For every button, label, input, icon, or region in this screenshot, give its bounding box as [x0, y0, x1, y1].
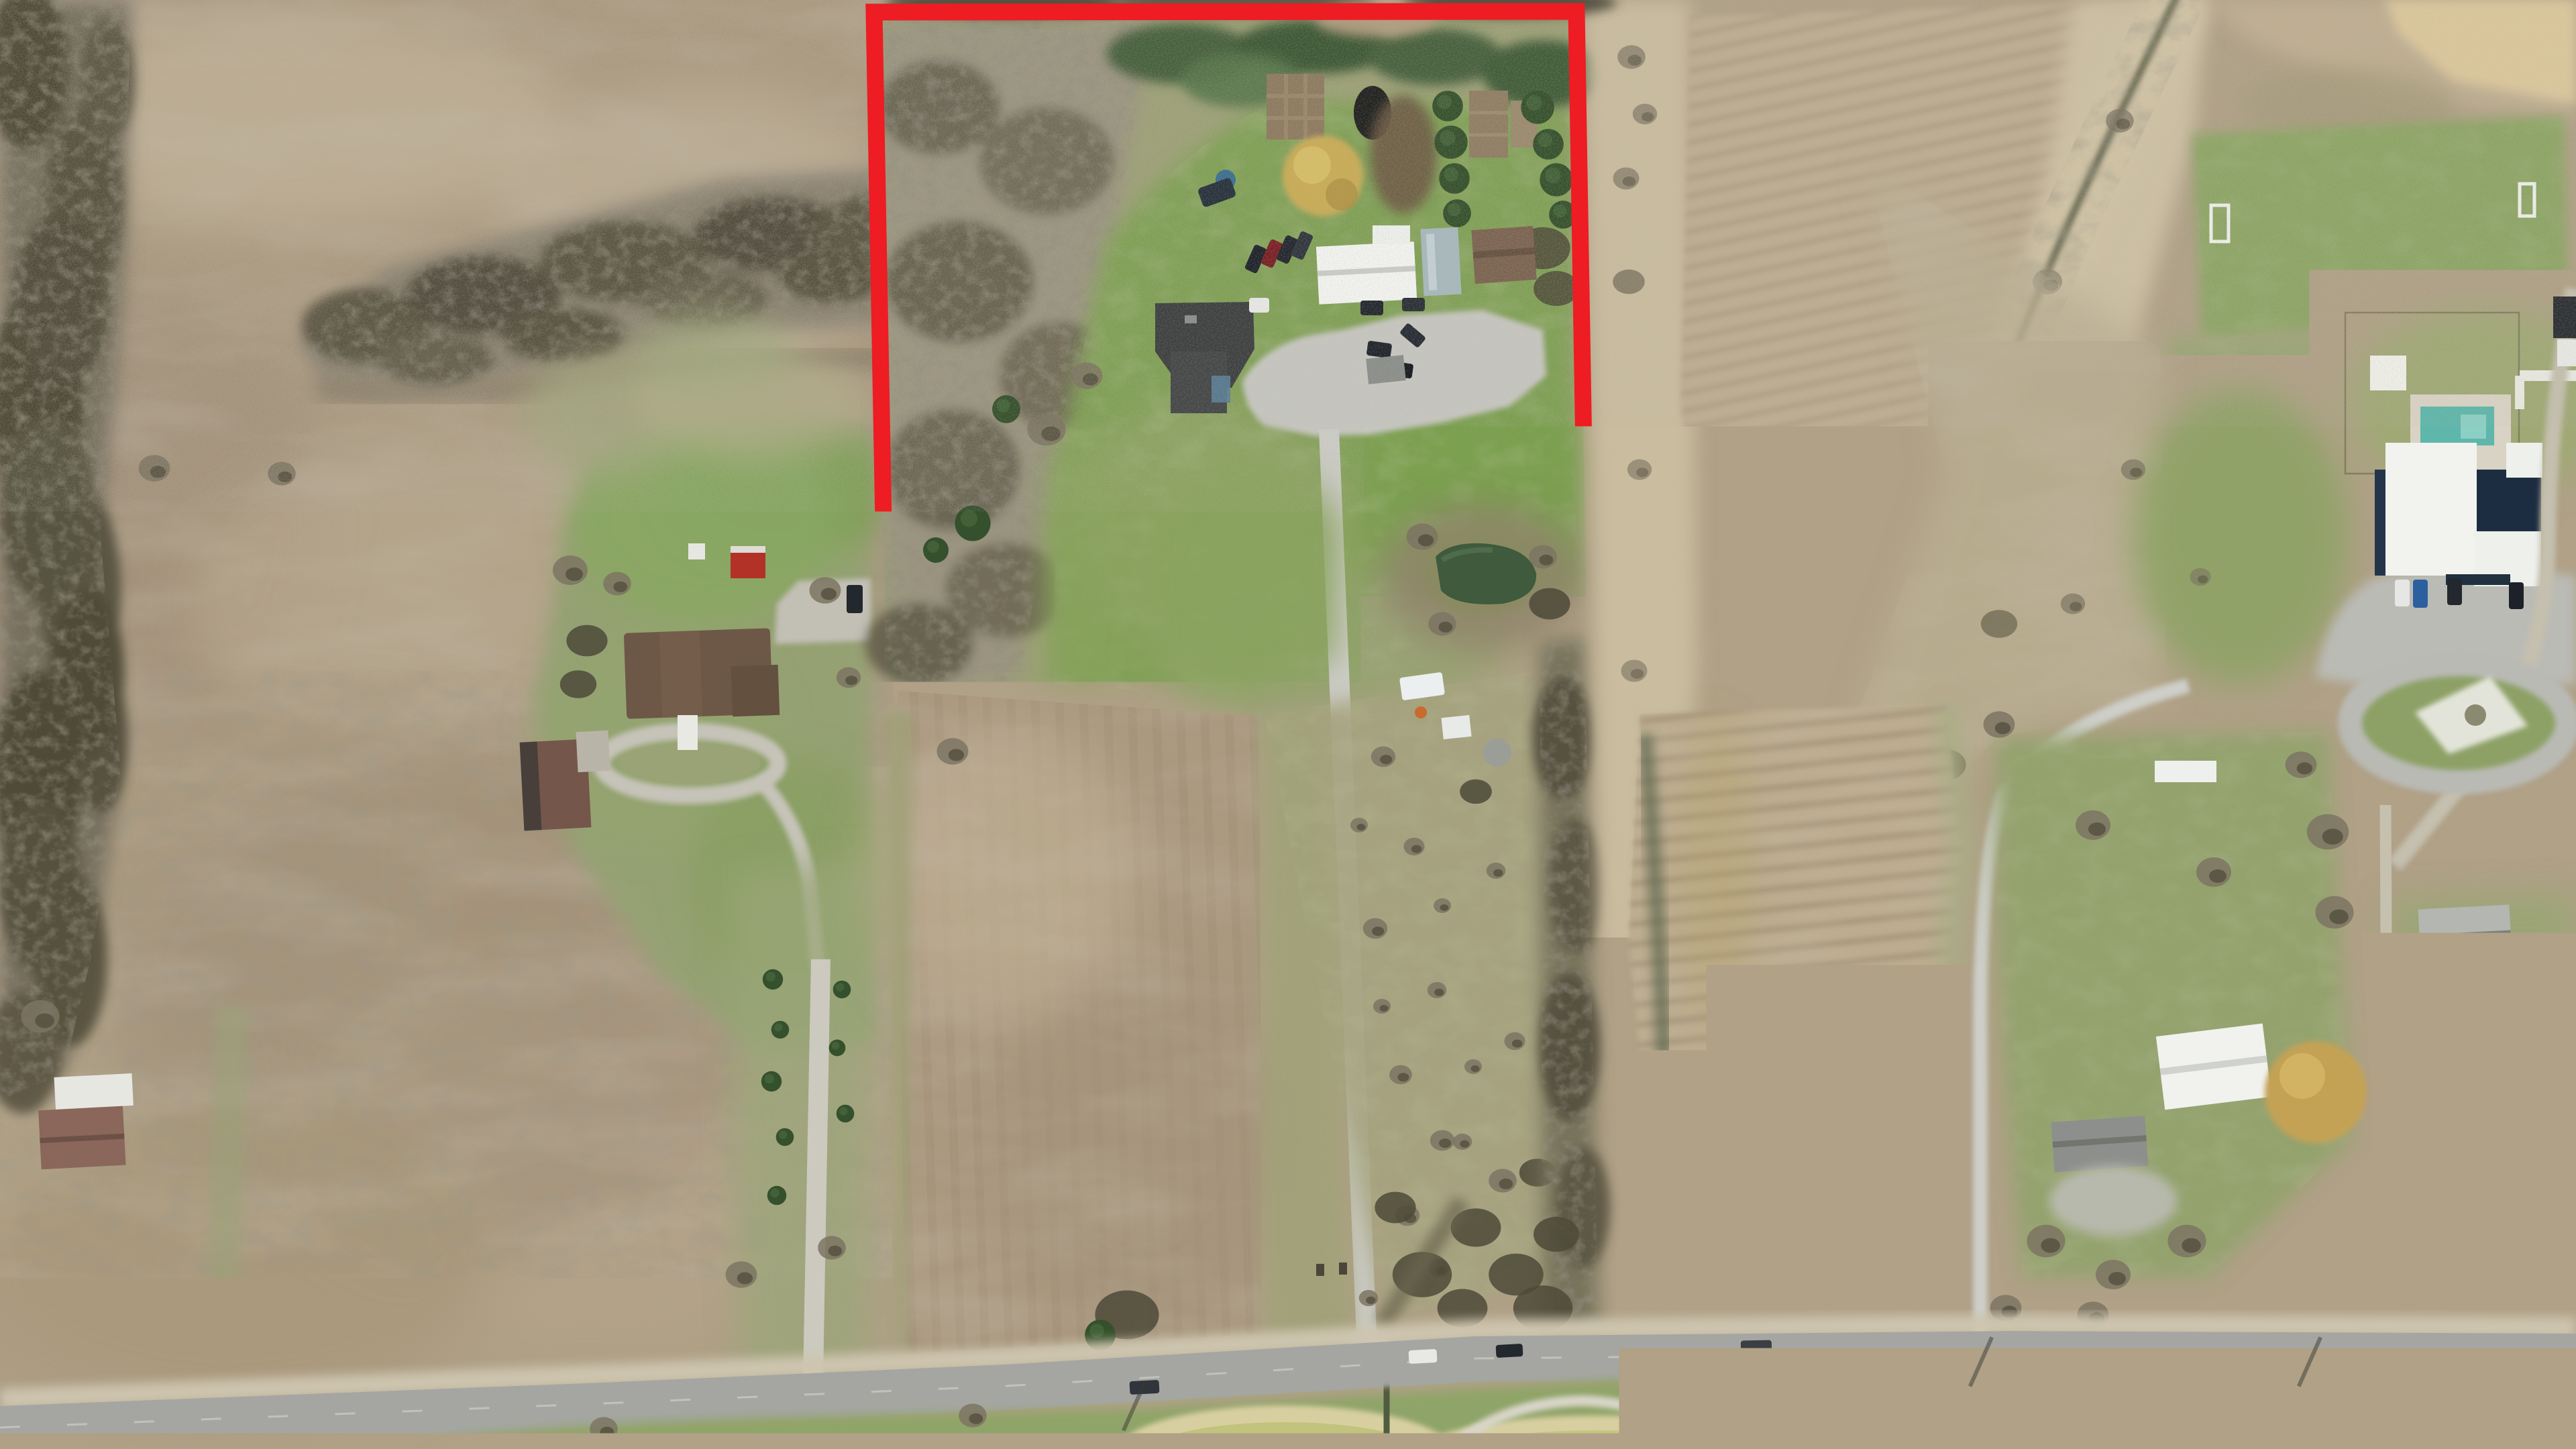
svg-text:RE/MAX ESCARPMENT LEADEX REALT: RE/MAX ESCARPMENT LEADEX REALTY, Brokera… — [775, 1338, 1913, 1386]
